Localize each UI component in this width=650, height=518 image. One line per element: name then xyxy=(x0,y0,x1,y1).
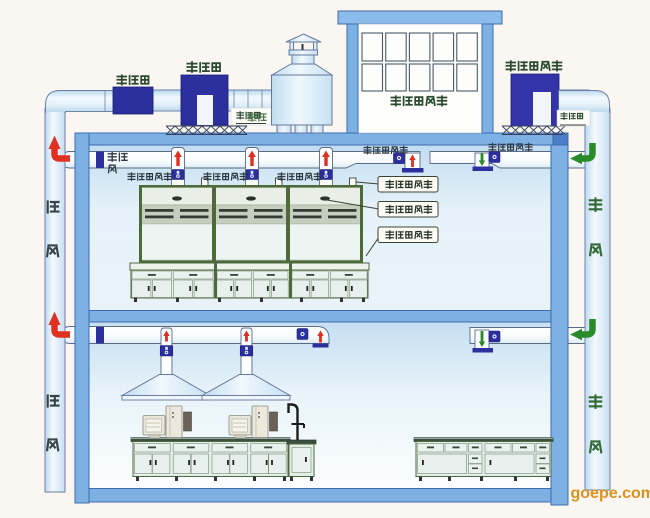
svg-text:goepe.com: goepe.com xyxy=(571,485,650,502)
